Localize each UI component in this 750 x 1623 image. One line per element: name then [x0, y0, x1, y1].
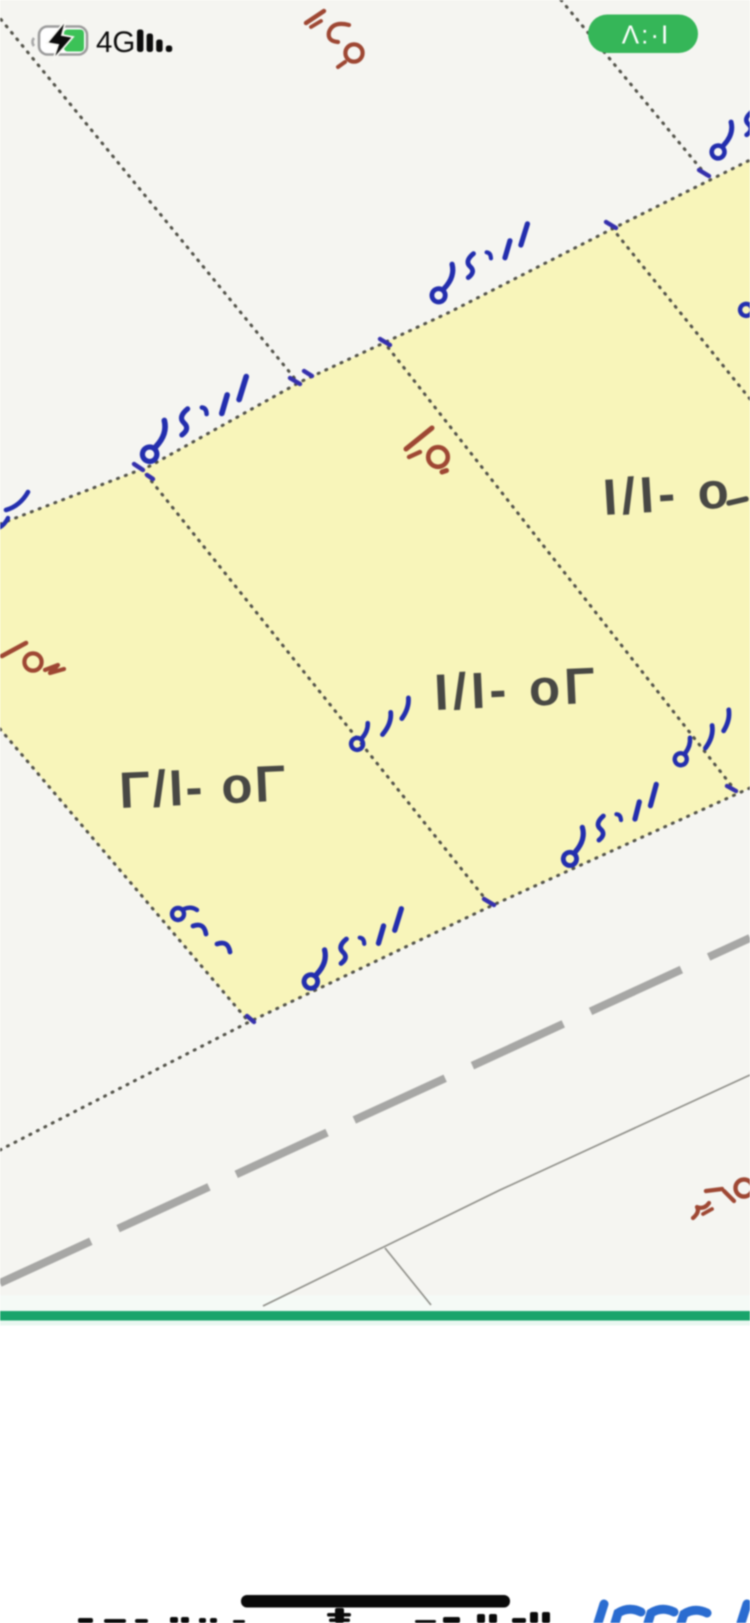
svg-text:Λ:·Ι: Λ:·Ι	[622, 20, 670, 50]
svg-text:4G: 4G	[96, 26, 135, 59]
svg-text:Γ/Ι- οΓ: Γ/Ι- οΓ	[118, 754, 289, 819]
svg-text:Ι/Ι- οΓ: Ι/Ι- οΓ	[433, 657, 600, 721]
svg-text:Ι/Ι- ο: Ι/Ι- ο	[601, 461, 734, 526]
